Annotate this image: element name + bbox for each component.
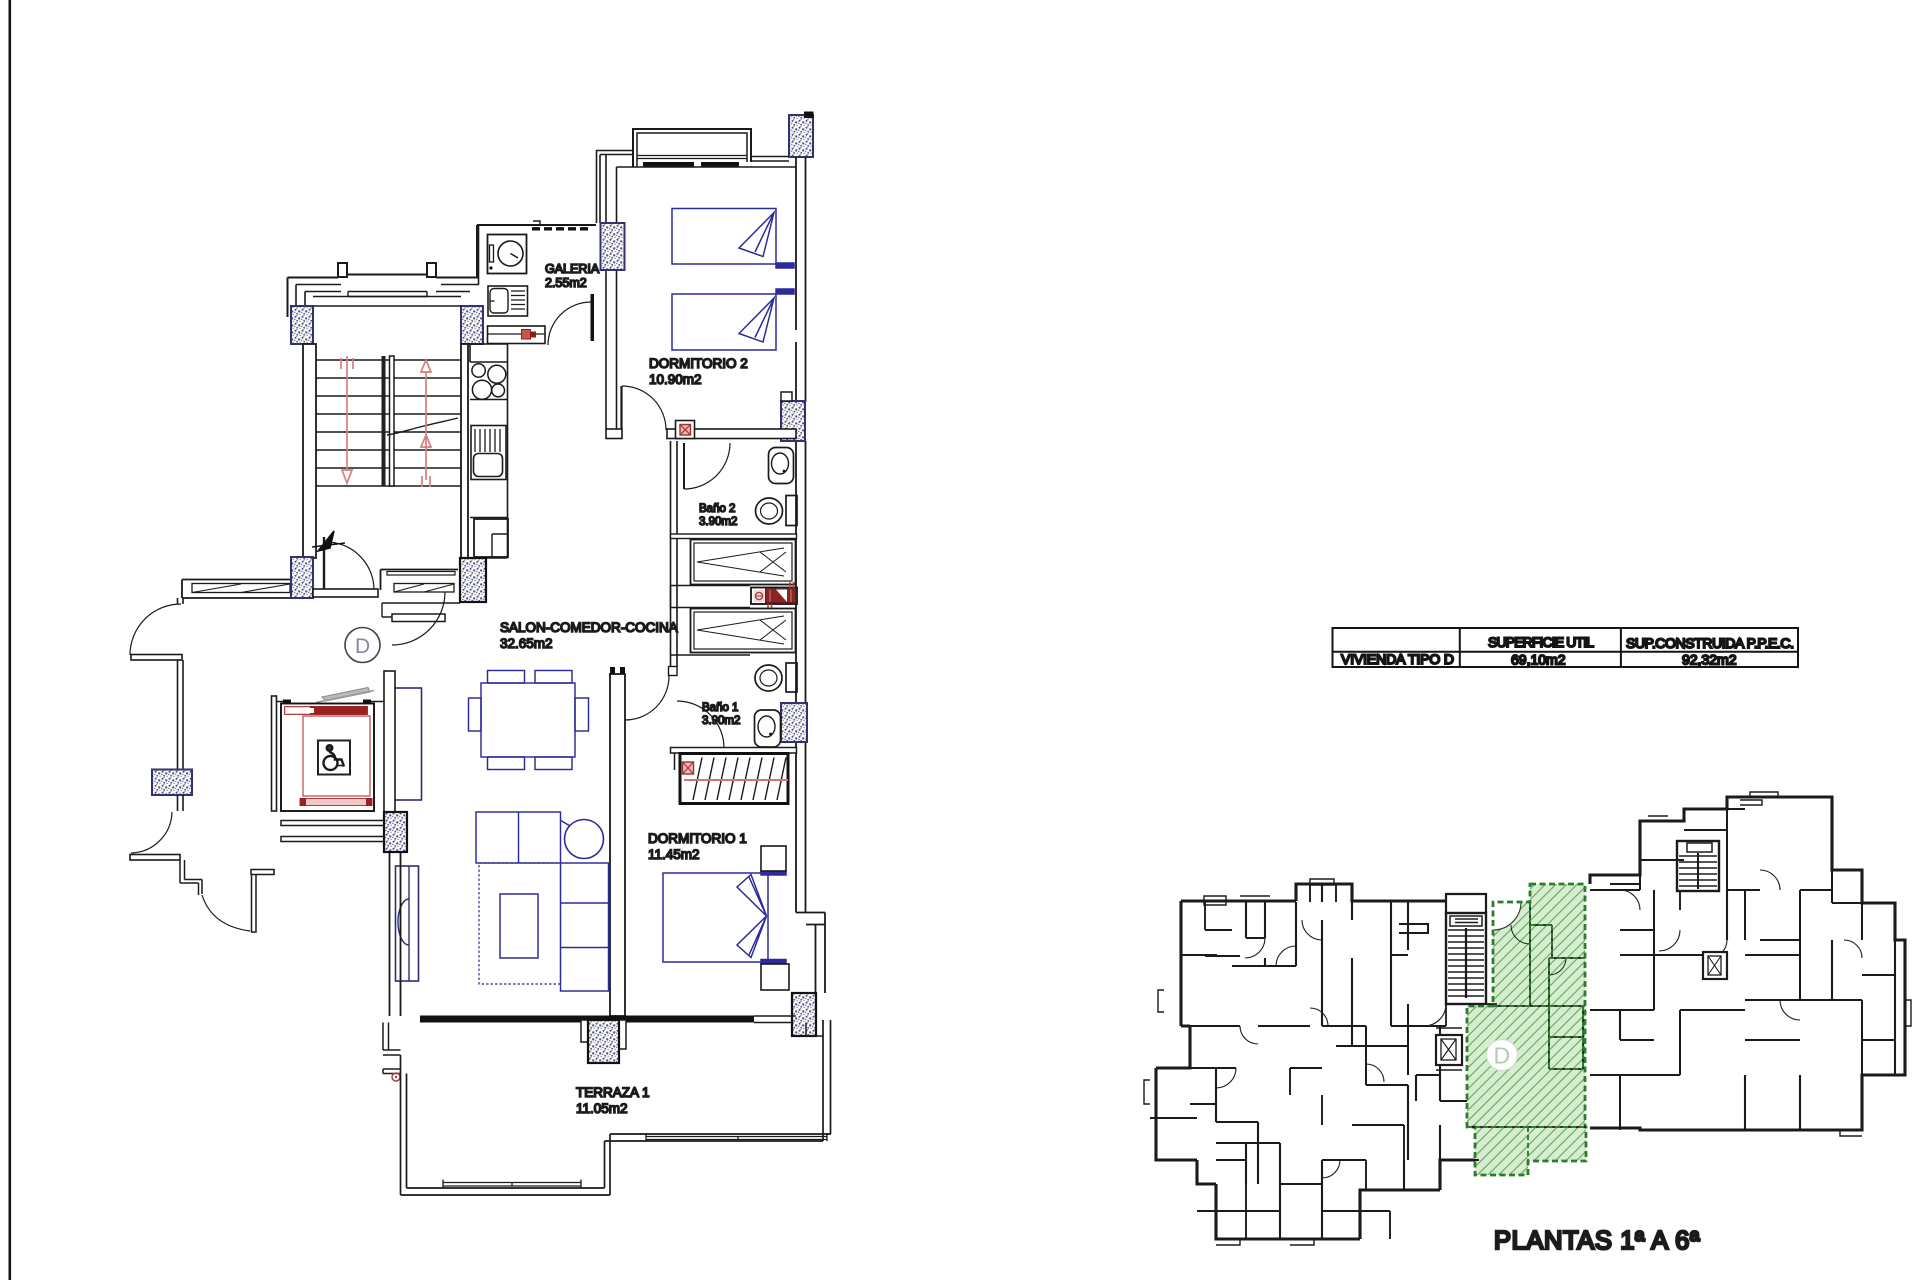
svg-text:32.65m2: 32.65m2 bbox=[500, 636, 553, 651]
svg-text:DORMITORIO 1: DORMITORIO 1 bbox=[648, 831, 747, 846]
svg-text:69,10m2: 69,10m2 bbox=[1511, 652, 1566, 668]
svg-text:SUP.CONSTRUIDA P.P.E.C.: SUP.CONSTRUIDA P.P.E.C. bbox=[1626, 635, 1794, 651]
svg-text:10.90m2: 10.90m2 bbox=[649, 372, 702, 387]
svg-text:PLANTAS 1ª A 6ª: PLANTAS 1ª A 6ª bbox=[1494, 1227, 1700, 1255]
svg-text:92,32m2: 92,32m2 bbox=[1682, 652, 1737, 668]
svg-text:D: D bbox=[355, 635, 370, 658]
svg-text:SALON-COMEDOR-COCINA: SALON-COMEDOR-COCINA bbox=[500, 620, 678, 635]
svg-text:D: D bbox=[1494, 1043, 1511, 1069]
svg-text:2.55m2: 2.55m2 bbox=[545, 276, 587, 290]
svg-text:3.90m2: 3.90m2 bbox=[702, 715, 740, 727]
svg-text:Baño 2: Baño 2 bbox=[699, 503, 735, 515]
svg-text:11.45m2: 11.45m2 bbox=[648, 847, 700, 862]
svg-text:TERRAZA 1: TERRAZA 1 bbox=[576, 1085, 650, 1100]
svg-text:DORMITORIO 2: DORMITORIO 2 bbox=[649, 356, 748, 371]
svg-text:SUPERFICIE UTIL: SUPERFICIE UTIL bbox=[1488, 634, 1594, 650]
svg-text:3.90m2: 3.90m2 bbox=[699, 516, 737, 528]
svg-text:11.05m2: 11.05m2 bbox=[576, 1101, 628, 1116]
svg-text:GALERIA: GALERIA bbox=[545, 262, 600, 276]
svg-text:VIVIENDA TIPO D: VIVIENDA TIPO D bbox=[1341, 651, 1454, 667]
